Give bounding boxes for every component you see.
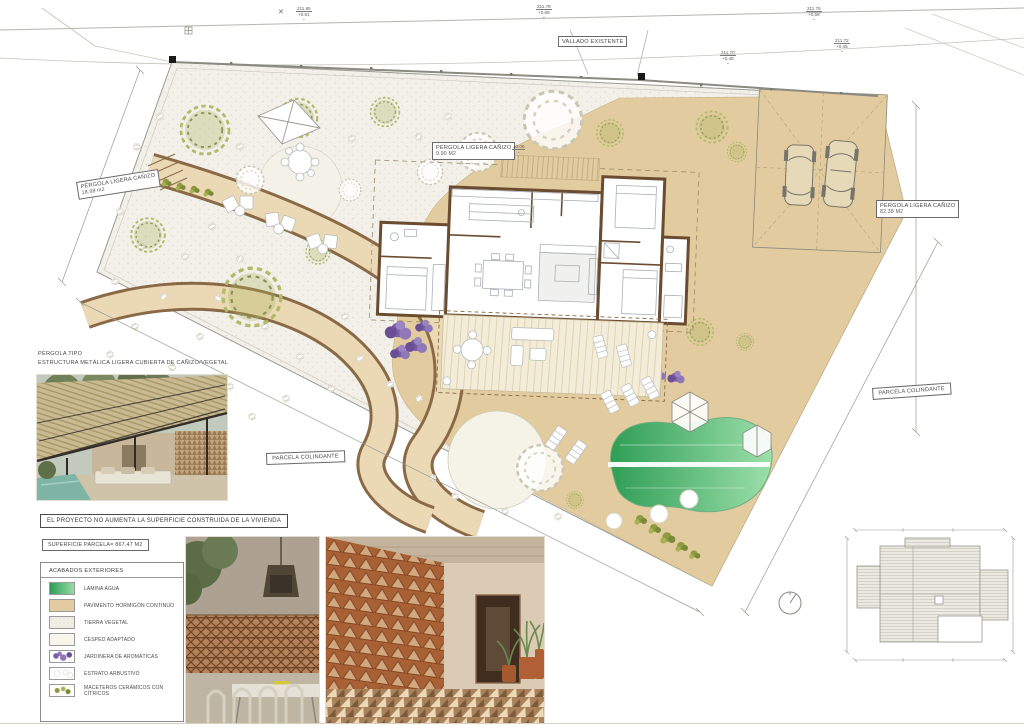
parking — [753, 89, 888, 252]
legend-panel: ACABADOS EXTERIORES LÁMINA AGUA PAVIMENT… — [40, 562, 184, 722]
pavement-swatch — [49, 599, 75, 612]
legend-title: ACABADOS EXTERIORES — [41, 563, 183, 578]
lattice-dining-photo — [185, 536, 320, 724]
grass-swatch — [49, 633, 75, 646]
north-symbol — [779, 592, 801, 614]
roof-reference-plan — [845, 528, 1015, 662]
benchmark-cross-icon: ✕ — [278, 8, 284, 16]
legend-item: CESPED ADAPTADO — [41, 631, 183, 648]
legend-item: PAVIMENTO HORMIGÓN CONTINUO — [41, 597, 183, 614]
benchmark-marker: ±0.00⌄ — [512, 144, 525, 154]
benchmark-marker: 211.76+0.68⌄ — [806, 6, 822, 21]
benchmark-marker: 211.70+0.48⌄ — [720, 50, 736, 65]
terracotta-corridor-photo — [325, 536, 545, 724]
site-plan-sheet: { "statement": "EL PROYECTO NO AUMENTA L… — [0, 0, 1024, 728]
water-swatch — [49, 582, 75, 595]
legend-item: MACETEROS CERÁMICOS CON CÍTRICOS — [41, 682, 183, 699]
legend-item: LÁMINA AGUA — [41, 580, 183, 597]
pergola-tipo-note: PÉRGOLA TIPO ESTRUCTURA METÁLICA LIGERA … — [38, 350, 228, 368]
aromatics-swatch — [49, 650, 75, 663]
car — [821, 139, 859, 208]
shrub-swatch — [49, 667, 75, 680]
project-statement: EL PROYECTO NO AUMENTA LA SUPERFICIE CON… — [40, 514, 288, 528]
vallado-existente-label: VALLADO EXISTENTE — [558, 36, 627, 47]
legend-item: JARDINERA DE AROMÁTICAS — [41, 648, 183, 665]
pergola-center-label: PÉRGOLA LIGERA CAÑIZO 9.90 M2 — [432, 142, 515, 160]
car — [782, 144, 816, 205]
benchmark-marker: 211.85+0.81⌄ — [296, 6, 312, 21]
pergola-right-label: PÉRGOLA LIGERA CAÑIZO 82.38 M2 — [876, 200, 959, 218]
citrus-swatch — [49, 684, 75, 697]
manhole-icon — [185, 27, 192, 34]
legend-item: TIERRA VEGETAL — [41, 614, 183, 631]
soil-swatch — [49, 616, 75, 629]
superficie-parcela: SUPERFICIE PARCELA= 867.47 M2 — [42, 539, 149, 551]
benchmark-marker: 211.78+0.68⌄ — [536, 4, 552, 19]
benchmark-marker: 211.72+0.45⌄ — [834, 38, 850, 53]
sheet-edge-line — [0, 723, 1024, 724]
legend-item: ESTRATO ARBUSTIVO — [41, 665, 183, 682]
road-lines — [0, 8, 1024, 75]
pergola-reference-photo — [36, 374, 228, 501]
